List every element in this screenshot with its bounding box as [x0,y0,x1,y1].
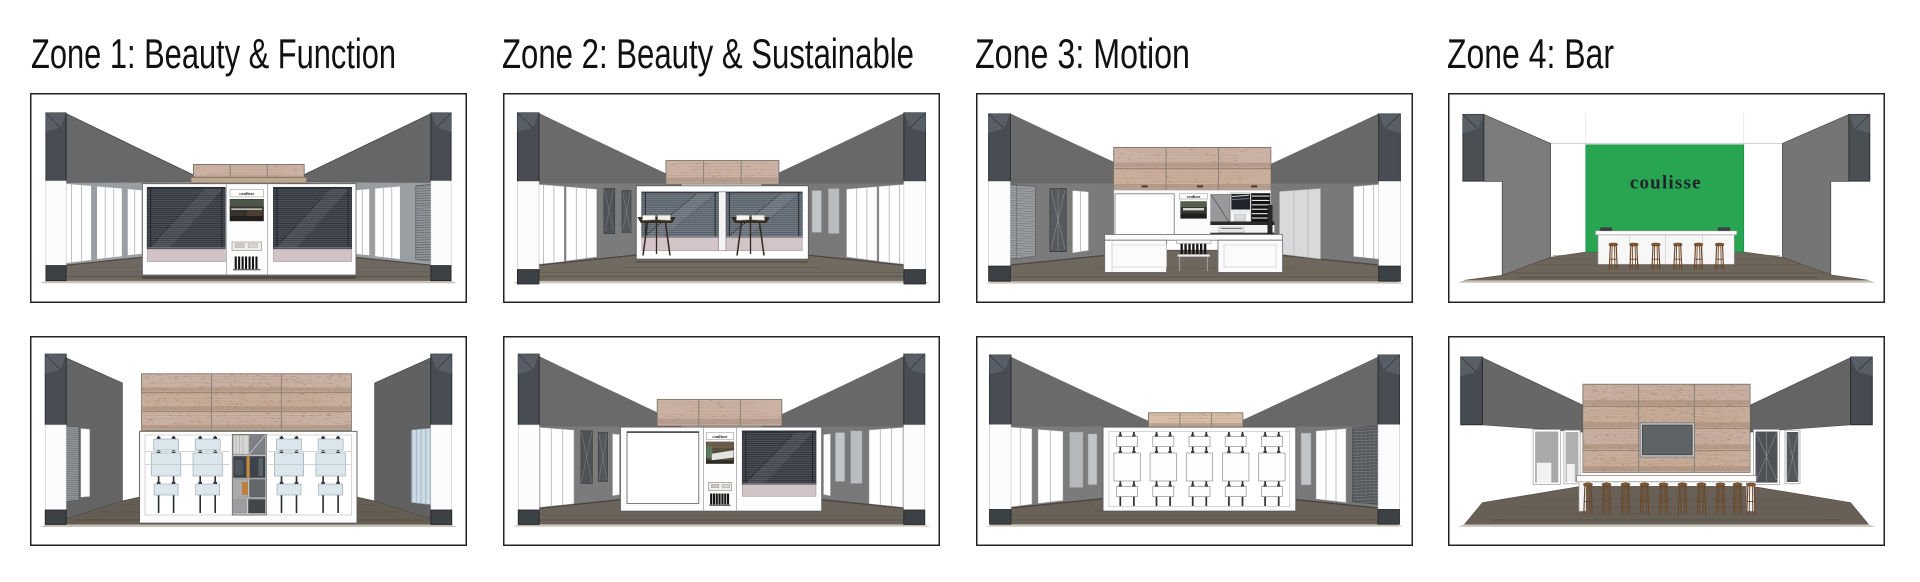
svg-text:coulisse: coulisse [1187,194,1201,199]
svg-text:coulisse: coulisse [712,434,727,439]
svg-text:coulisse: coulisse [1630,173,1702,194]
svg-text:coulisse: coulisse [239,191,254,196]
